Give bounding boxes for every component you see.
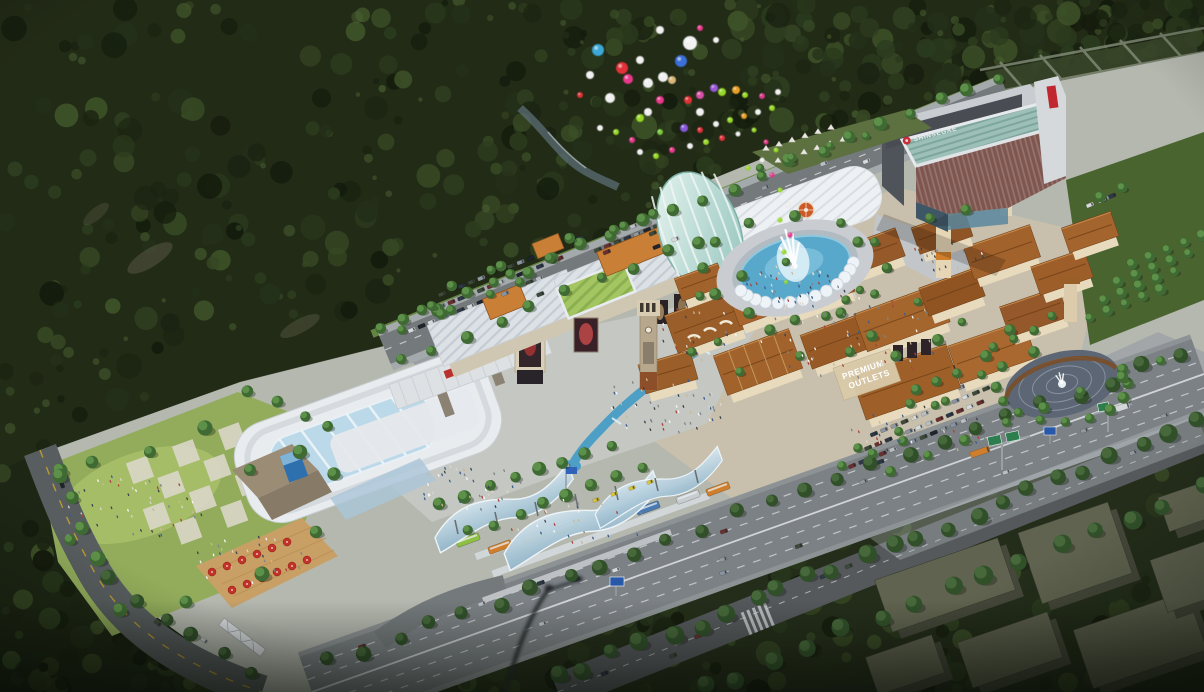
- bottom-fade: [0, 600, 1204, 692]
- aerial-render: SHINSEGAE: [0, 0, 1204, 692]
- vignette: [0, 0, 1204, 692]
- scene-canvas: SHINSEGAE: [0, 0, 1204, 692]
